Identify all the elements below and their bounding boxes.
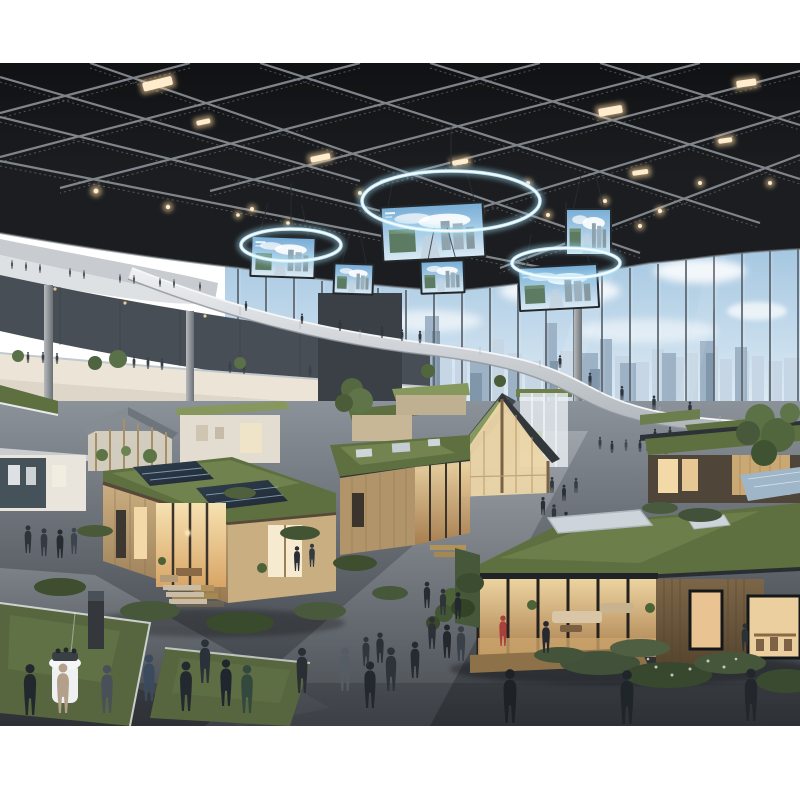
- exhibition-hall-photo: [0, 0, 800, 800]
- ceiling-vignette: [0, 63, 800, 173]
- window: [690, 591, 722, 649]
- scene-canvas: [0, 63, 800, 726]
- living-window: [156, 503, 226, 587]
- wood-steps: [163, 585, 207, 604]
- small-white-house: [0, 448, 88, 511]
